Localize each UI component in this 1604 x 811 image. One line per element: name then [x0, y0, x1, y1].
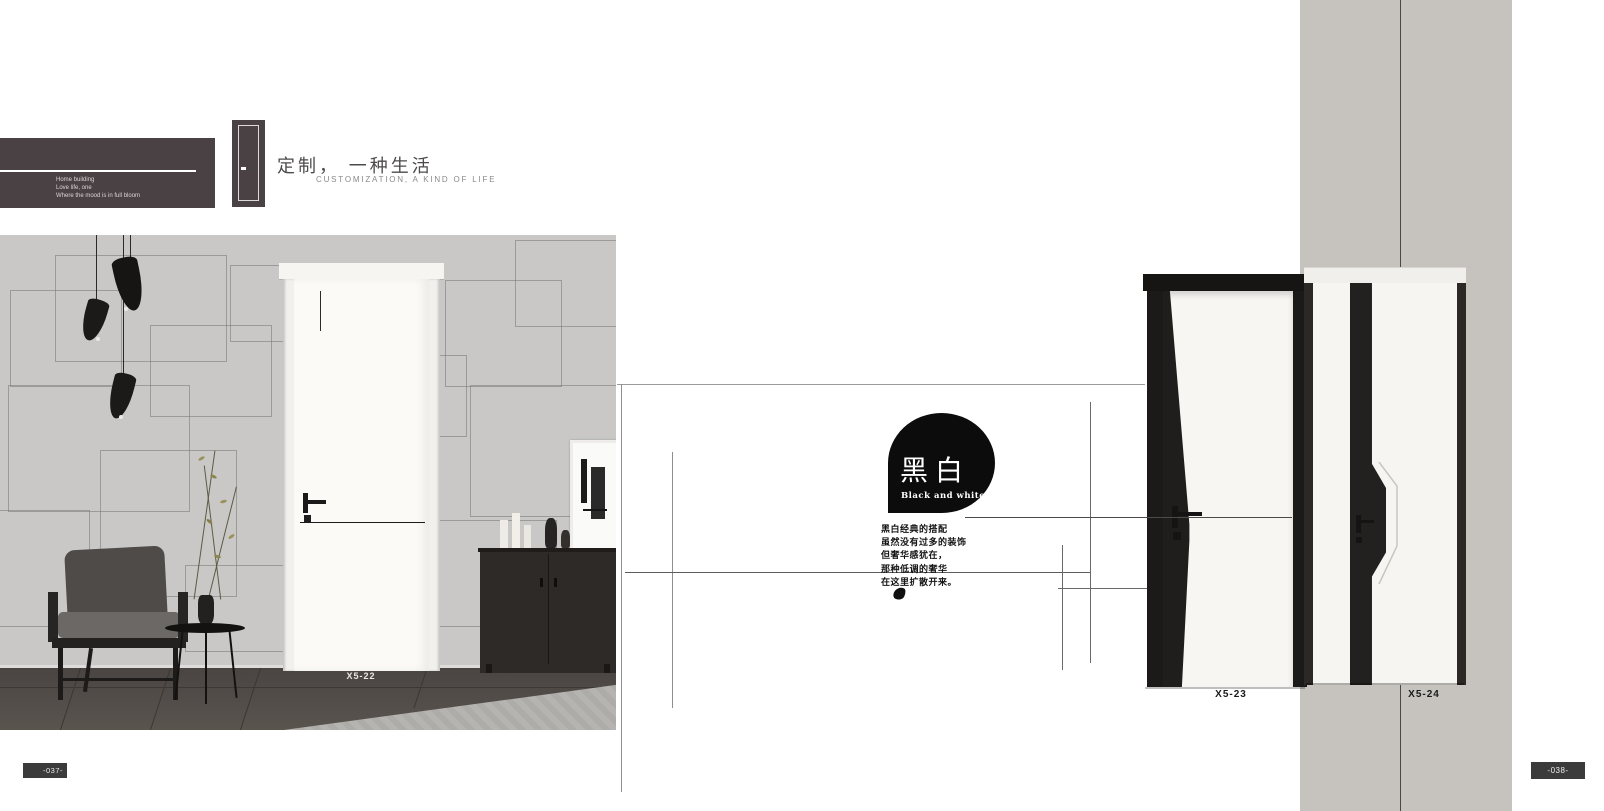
sideboard-handle	[554, 578, 557, 587]
door-x5-22	[283, 263, 440, 673]
frame-art	[591, 467, 605, 519]
deco-vline-b	[672, 452, 673, 708]
tagline-en: CUSTOMIZATION, A KIND OF LIFE	[316, 175, 496, 184]
armchair	[28, 540, 188, 705]
room-photo: X5-22	[0, 235, 616, 730]
description-line: 在这里扩散开来。	[881, 576, 967, 589]
armchair-armrest	[48, 592, 58, 642]
frame-art	[583, 509, 607, 511]
door-lock	[1356, 537, 1362, 543]
armchair-base	[52, 638, 186, 648]
theme-title-cn: 黑白	[900, 449, 970, 489]
logo-underline	[0, 170, 196, 172]
sideboard	[480, 548, 616, 673]
slogan-line: Home building	[56, 176, 140, 184]
lamp-bulb	[124, 307, 128, 311]
side-table-leg	[205, 630, 207, 704]
door-emblem	[232, 120, 265, 207]
description-line: 那种低调的奢华	[881, 563, 967, 576]
deco-vline-d	[1062, 545, 1063, 670]
theme-description: 黑白经典的搭配 虽然没有过多的装饰 但奢华感犹在， 那种低调的奢华 在这里扩散开…	[881, 523, 967, 589]
logo-box: SHI SHANG Home building Love life, one W…	[0, 138, 215, 208]
plant-vase	[198, 595, 214, 625]
door-emblem-handle	[241, 167, 246, 170]
door-panel	[294, 279, 429, 671]
slogan-line: Where the mood is in full bloom	[56, 192, 140, 200]
description-line: 虽然没有过多的装饰	[881, 536, 967, 549]
door-lintel	[1304, 267, 1466, 283]
door-x5-23	[1143, 274, 1307, 689]
door-handle	[1356, 515, 1361, 533]
candle	[500, 520, 508, 548]
wall-panel	[515, 240, 616, 327]
door-edge-right	[1457, 283, 1466, 685]
deco-hline-short	[1058, 588, 1147, 589]
armchair-leg	[58, 648, 63, 700]
armchair-cushion	[58, 612, 180, 638]
armchair-leg	[83, 648, 93, 692]
door-handle-lever	[1176, 512, 1202, 516]
model-label-x5-22: X5-22	[321, 671, 401, 681]
page-badge-left: -037-	[23, 763, 67, 778]
armchair-stretcher	[60, 678, 178, 681]
door-handle-lever	[306, 500, 326, 504]
catalog-spread: SHI SHANG Home building Love life, one W…	[0, 0, 1604, 811]
model-label-x5-24: X5-24	[1384, 689, 1464, 700]
door-groove-horizontal	[300, 522, 425, 523]
sideboard-door-split	[548, 554, 549, 664]
model-label-x5-23: X5-23	[1191, 689, 1271, 700]
sideboard-handle	[540, 578, 543, 587]
vase	[545, 518, 557, 548]
candle	[524, 525, 531, 548]
door-jamb-right	[429, 279, 440, 671]
door-architrave	[279, 263, 444, 279]
slogan-line: Love life, one	[56, 184, 140, 192]
sideboard-leg	[486, 664, 492, 673]
candle	[512, 513, 520, 548]
door-emblem-outline	[238, 125, 259, 201]
sideboard-top	[478, 548, 616, 552]
description-line: 但奢华感犹在，	[881, 549, 967, 562]
deco-vline-a	[621, 384, 622, 792]
theme-badge: 黑白 Black and white	[888, 413, 995, 513]
door-x5-24	[1304, 267, 1466, 687]
deco-vline-c	[1090, 402, 1091, 663]
brand-slogans: Home building Love life, one Where the m…	[56, 176, 140, 200]
theme-title-en: Black and white	[901, 491, 985, 501]
page-number-left: -037-	[23, 763, 67, 778]
deco-hline-mid	[625, 572, 1091, 573]
door-groove-outline	[1376, 462, 1404, 586]
lamp-cord	[96, 235, 97, 303]
door-lintel	[1143, 274, 1307, 291]
picture-frame	[570, 440, 616, 554]
door-handle-lever	[1359, 520, 1374, 523]
door-jamb-left	[283, 279, 294, 671]
deco-hline-top	[617, 384, 1145, 385]
door-groove-vertical	[320, 291, 321, 331]
lamp-bulb	[96, 337, 100, 341]
description-line: 黑白经典的搭配	[881, 523, 967, 536]
door-jamb-left	[1147, 291, 1163, 687]
door-lock	[1173, 532, 1181, 540]
sideboard-leg	[604, 664, 610, 673]
door-shadow	[1306, 683, 1464, 685]
frame-art	[581, 459, 587, 503]
page-number-right: -038-	[1531, 762, 1585, 779]
door-edge-left	[1304, 283, 1313, 685]
deco-hline-cross	[965, 517, 1292, 518]
lamp-bulb	[119, 415, 123, 419]
door-lock	[304, 515, 311, 522]
page-badge-right: -038-	[1531, 762, 1585, 779]
vase	[561, 530, 570, 548]
